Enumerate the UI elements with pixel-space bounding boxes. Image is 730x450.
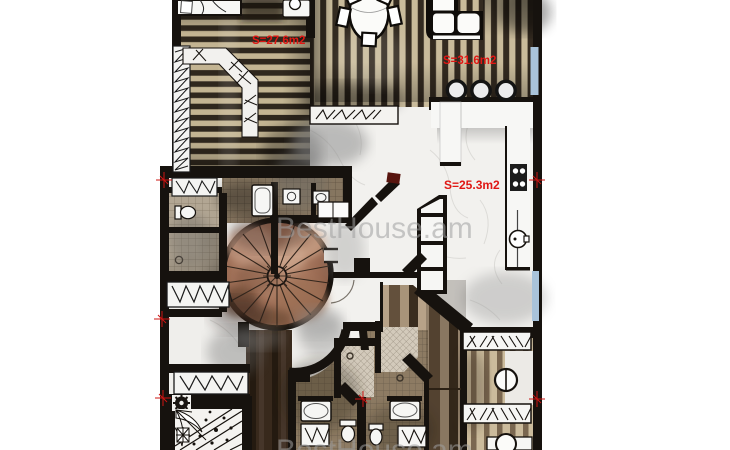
svg-text:BestHouse.am: BestHouse.am [276, 212, 473, 245]
svg-text:BestHouse.am: BestHouse.am [276, 434, 473, 450]
svg-text:S=25.3m2: S=25.3m2 [444, 178, 500, 192]
svg-text:S=27.6m2: S=27.6m2 [252, 35, 305, 47]
svg-text:S=31.6m2: S=31.6m2 [443, 55, 496, 67]
